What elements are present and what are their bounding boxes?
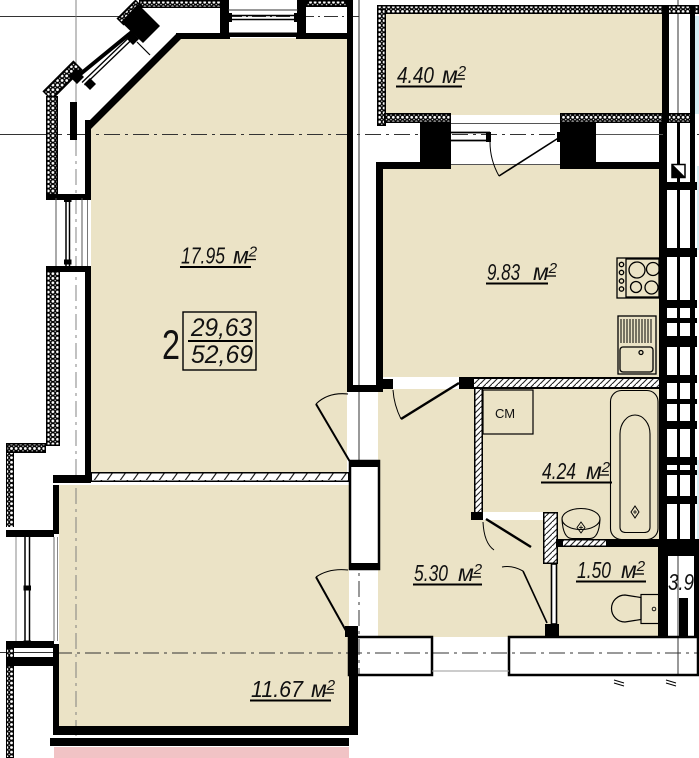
svg-text:4.40м2: 4.40м2 [397, 62, 467, 88]
svg-text:17.95м2: 17.95м2 [181, 243, 258, 269]
svg-text:52,69: 52,69 [191, 341, 253, 369]
svg-text:29,63: 29,63 [190, 314, 252, 342]
svg-text:11.67м2: 11.67м2 [251, 676, 336, 702]
svg-text:2: 2 [162, 321, 180, 368]
svg-text:3.9: 3.9 [668, 569, 694, 595]
svg-text:СМ: СМ [495, 406, 515, 421]
